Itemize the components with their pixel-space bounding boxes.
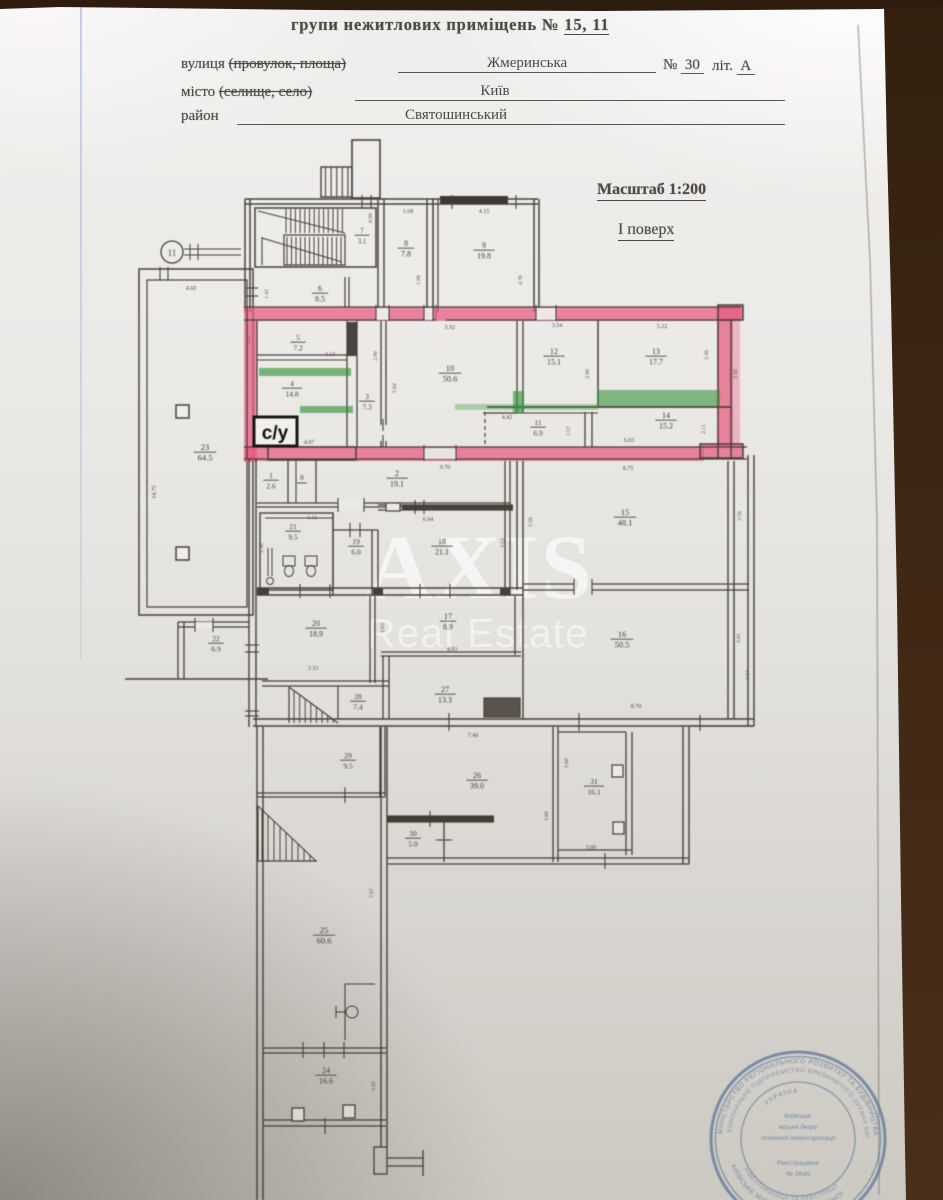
svg-text:1.42: 1.42 <box>264 289 270 299</box>
svg-text:міське бюро: міське бюро <box>779 1123 818 1131</box>
svg-text:1.55: 1.55 <box>246 335 252 345</box>
svg-text:8.5: 8.5 <box>315 295 325 304</box>
svg-text:8.70: 8.70 <box>631 704 642 710</box>
svg-text:5.64: 5.64 <box>392 383 398 393</box>
svg-text:21: 21 <box>289 522 297 531</box>
svg-text:3.50: 3.50 <box>737 511 743 521</box>
svg-text:5.60: 5.60 <box>564 758 570 768</box>
svg-text:2.98: 2.98 <box>373 351 379 361</box>
svg-text:6.04: 6.04 <box>423 517 434 523</box>
svg-text:15.1: 15.1 <box>547 358 561 367</box>
svg-text:19.1: 19.1 <box>390 480 404 489</box>
svg-text:2.6: 2.6 <box>266 482 276 491</box>
svg-text:12: 12 <box>550 347 558 356</box>
svg-text:1.98: 1.98 <box>416 275 422 285</box>
svg-text:3.50: 3.50 <box>733 369 739 379</box>
svg-text:16.6: 16.6 <box>319 1077 333 1086</box>
svg-text:6.03: 6.03 <box>624 438 635 444</box>
svg-text:17.7: 17.7 <box>649 358 663 367</box>
svg-text:25: 25 <box>320 925 329 935</box>
svg-text:10: 10 <box>446 363 455 373</box>
svg-text:7.8: 7.8 <box>401 250 411 259</box>
svg-text:8.9: 8.9 <box>443 623 453 632</box>
svg-text:5.22: 5.22 <box>657 324 668 330</box>
svg-text:22: 22 <box>212 634 220 643</box>
svg-text:5.92: 5.92 <box>445 325 456 331</box>
svg-text:14.8: 14.8 <box>285 390 298 399</box>
svg-text:23: 23 <box>201 442 210 452</box>
svg-text:3.96: 3.96 <box>585 369 591 379</box>
svg-text:8: 8 <box>404 239 408 248</box>
svg-text:17: 17 <box>444 612 452 621</box>
svg-text:1: 1 <box>269 471 273 480</box>
svg-text:Київське: Київське <box>785 1113 812 1120</box>
svg-text:4.42: 4.42 <box>502 415 513 421</box>
svg-text:7.2: 7.2 <box>293 344 303 353</box>
svg-text:1.57: 1.57 <box>566 426 572 436</box>
svg-text:7.40: 7.40 <box>468 733 479 739</box>
svg-text:с/у: с/у <box>262 423 289 444</box>
svg-text:4.60: 4.60 <box>186 286 197 292</box>
svg-text:27: 27 <box>441 685 449 694</box>
svg-text:14.75: 14.75 <box>152 485 158 499</box>
svg-text:16.1: 16.1 <box>587 788 600 797</box>
svg-text:5.50: 5.50 <box>528 517 534 527</box>
svg-text:Реєстраційне: Реєстраційне <box>777 1159 820 1167</box>
svg-text:48.1: 48.1 <box>618 518 633 528</box>
svg-text:19.8: 19.8 <box>477 252 491 261</box>
svg-text:3.02: 3.02 <box>371 1081 377 1091</box>
svg-text:9.5: 9.5 <box>343 762 353 771</box>
svg-text:4.15: 4.15 <box>479 209 490 215</box>
svg-text:18: 18 <box>438 537 446 546</box>
svg-text:39.0: 39.0 <box>470 782 484 791</box>
svg-text:8: 8 <box>300 473 304 482</box>
svg-text:2.90: 2.90 <box>259 543 265 553</box>
svg-text:3.63: 3.63 <box>380 623 386 633</box>
svg-text:9.70: 9.70 <box>440 465 451 471</box>
svg-text:30: 30 <box>409 829 417 838</box>
svg-text:3.53: 3.53 <box>500 538 506 548</box>
svg-text:5: 5 <box>296 333 300 342</box>
svg-text:9.5: 9.5 <box>288 533 298 542</box>
svg-text:2: 2 <box>395 469 399 478</box>
svg-text:6.9: 6.9 <box>533 429 543 438</box>
svg-text:60.6: 60.6 <box>317 936 332 946</box>
svg-text:18.9: 18.9 <box>309 630 323 639</box>
svg-text:26: 26 <box>473 771 481 780</box>
svg-text:5.81: 5.81 <box>736 633 742 643</box>
svg-text:3: 3 <box>365 392 369 401</box>
svg-text:24: 24 <box>322 1066 330 1075</box>
svg-text:3.54: 3.54 <box>552 323 563 329</box>
svg-text:6.0: 6.0 <box>351 548 361 557</box>
svg-text:0.90: 0.90 <box>368 213 374 223</box>
svg-text:5.0: 5.0 <box>408 840 418 849</box>
svg-text:14: 14 <box>662 411 670 420</box>
svg-text:31: 31 <box>590 777 598 786</box>
svg-text:50.5: 50.5 <box>615 640 630 650</box>
svg-text:64.5: 64.5 <box>198 453 213 463</box>
svg-text:6.9: 6.9 <box>211 645 221 654</box>
svg-text:21.1: 21.1 <box>435 548 449 557</box>
svg-text:3.30: 3.30 <box>704 350 710 360</box>
svg-text:9: 9 <box>482 241 486 250</box>
svg-text:15.2: 15.2 <box>659 422 673 431</box>
svg-text:технічної інвентаризації: технічної інвентаризації <box>760 1134 835 1142</box>
svg-text:8.75: 8.75 <box>623 466 634 472</box>
svg-text:7.4: 7.4 <box>353 703 363 712</box>
svg-text:7.3: 7.3 <box>362 403 372 412</box>
svg-text:16: 16 <box>618 629 627 639</box>
svg-text:15: 15 <box>621 507 630 517</box>
svg-text:3.12: 3.12 <box>307 515 317 521</box>
svg-text:4.76: 4.76 <box>518 275 524 285</box>
svg-text:13: 13 <box>652 347 660 356</box>
svg-text:3.1: 3.1 <box>358 238 367 246</box>
svg-text:50.6: 50.6 <box>443 374 458 384</box>
svg-text:3.60: 3.60 <box>544 811 550 821</box>
svg-text:11: 11 <box>534 418 541 427</box>
svg-text:2.11: 2.11 <box>701 424 707 434</box>
svg-text:4.07: 4.07 <box>304 440 315 446</box>
svg-text:6: 6 <box>318 284 322 293</box>
svg-text:20: 20 <box>312 619 320 628</box>
svg-text:4: 4 <box>290 379 294 388</box>
svg-text:3.00: 3.00 <box>586 845 597 851</box>
svg-text:7: 7 <box>360 227 364 235</box>
svg-text:3.33: 3.33 <box>308 666 319 672</box>
svg-text:11: 11 <box>168 248 177 258</box>
svg-text:4.13: 4.13 <box>325 352 336 358</box>
svg-text:29: 29 <box>344 751 352 760</box>
svg-text:19: 19 <box>352 537 360 546</box>
svg-text:13.3: 13.3 <box>438 696 452 705</box>
svg-text:7.87: 7.87 <box>369 888 375 898</box>
svg-text:28: 28 <box>354 692 362 701</box>
svg-text:№ 2645: № 2645 <box>786 1171 811 1178</box>
svg-text:1.68: 1.68 <box>403 209 414 215</box>
svg-text:4.03: 4.03 <box>447 647 458 653</box>
